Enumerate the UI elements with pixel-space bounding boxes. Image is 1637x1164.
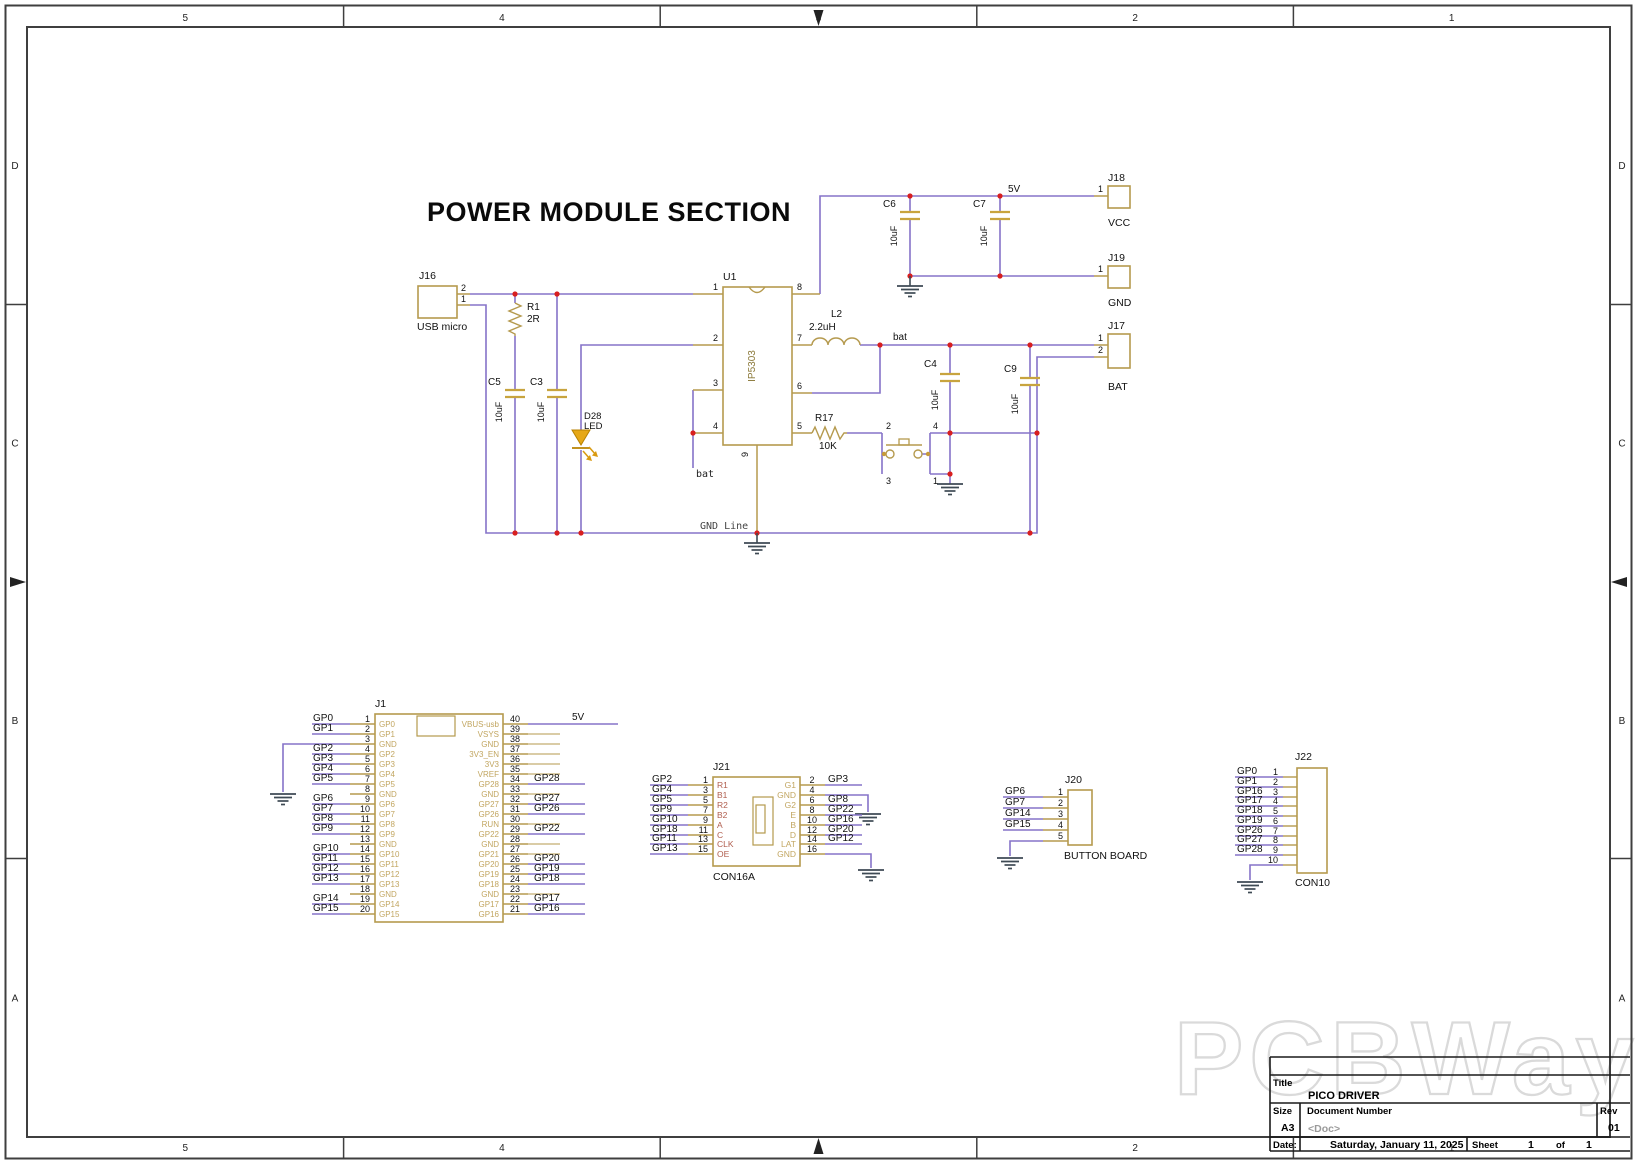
pin-number: 4	[1273, 796, 1278, 806]
pin-number: 1	[933, 476, 938, 486]
pin-name: GP3	[379, 760, 396, 769]
button-pin-dot	[926, 452, 930, 456]
zone-number: 2	[1132, 1143, 1138, 1154]
pin-name: GND	[379, 890, 397, 899]
pin-number: 20	[360, 904, 370, 914]
pin-number: 3	[365, 734, 370, 744]
pin-number: 5	[797, 421, 802, 431]
pin-number: 2	[1098, 345, 1103, 355]
pin-name: GND	[481, 740, 499, 749]
rev-label: Rev	[1600, 1106, 1618, 1117]
net-label: GP13	[313, 873, 339, 884]
net-label: GP16	[534, 903, 560, 914]
pin-name: 3V3	[485, 760, 500, 769]
pin-name: GP12	[379, 870, 400, 879]
j18-body	[1108, 186, 1130, 208]
pin-number: 34	[510, 774, 520, 784]
junction-dot	[690, 430, 695, 435]
center-arrow-icon	[10, 577, 26, 587]
pin-number: 16	[807, 844, 817, 854]
pin-number: 5	[1273, 806, 1278, 816]
pin-number: 29	[510, 824, 520, 834]
net-label: GP12	[828, 833, 854, 844]
pin-number: 13	[698, 834, 708, 844]
pin-number: 15	[698, 844, 708, 854]
net-label: GP18	[534, 873, 560, 884]
pin-name: B1	[717, 790, 728, 800]
pin-number: 3	[703, 785, 708, 795]
pin-name: GND	[777, 790, 796, 800]
j17-ref: J17	[1108, 320, 1125, 332]
led-triangle	[572, 430, 590, 445]
pin-name: GP8	[379, 820, 396, 829]
r1-ref: R1	[527, 302, 540, 313]
frame-inner	[27, 27, 1610, 1137]
pin-number: 8	[365, 784, 370, 794]
pin-number: 9	[365, 794, 370, 804]
zone-number: 2	[1132, 13, 1138, 24]
j19-ref: J19	[1108, 252, 1125, 264]
c7-value: 10uF	[979, 225, 989, 246]
button-pin-dot	[882, 452, 886, 456]
net-label-bat: bat	[696, 469, 714, 480]
pin-number: 8	[809, 805, 814, 815]
j18-name: VCC	[1108, 217, 1131, 229]
pin-number: 3	[886, 476, 891, 486]
drawing-frame: 5544332211DDCCBBAA	[6, 6, 1632, 1159]
pin-name: GP4	[379, 770, 396, 779]
pin-number: 10	[360, 804, 370, 814]
j21-name: CON16A	[713, 871, 755, 883]
pin-name: GP5	[379, 780, 396, 789]
pin-number: 1	[1058, 787, 1063, 797]
title-label: Title	[1273, 1078, 1292, 1089]
schematic-sheet: PCBWay 5544332211DDCCBBAA POWER MODULE S…	[0, 0, 1637, 1164]
pin-number: 4	[933, 421, 938, 431]
pin-number: 11	[361, 814, 370, 824]
pin-name: GP1	[379, 730, 396, 739]
pin-number: 9	[740, 452, 750, 457]
connector-j20-button-board: J20BUTTON BOARD1GP62GP73GP144GP155	[997, 774, 1148, 869]
pin-name: CLK	[717, 839, 734, 849]
j20-ref: J20	[1065, 774, 1082, 786]
pin-number: 3	[713, 378, 718, 388]
pin-number: 10	[1268, 855, 1278, 865]
junction-dot	[997, 193, 1002, 198]
led-icon	[572, 430, 598, 461]
pin-number: 1	[703, 775, 708, 785]
pin-name: R1	[717, 780, 728, 790]
date-label: Date:	[1273, 1140, 1297, 1151]
center-arrow-icon	[1611, 577, 1627, 587]
pin-number: 14	[360, 844, 370, 854]
junction-dot	[1027, 342, 1032, 347]
c4-ref: C4	[924, 359, 937, 370]
pin-number: 5	[703, 795, 708, 805]
pin-name: GND	[379, 840, 397, 849]
pin-number: 9	[1273, 845, 1278, 855]
pin-number: 26	[510, 854, 520, 864]
pin-number: 2	[1058, 798, 1063, 808]
j20-body	[1068, 790, 1092, 845]
zone-number: 4	[499, 13, 505, 24]
net-label: GP14	[1005, 808, 1031, 819]
pin-number: 32	[510, 794, 520, 804]
pin-name: VREF	[478, 770, 499, 779]
rev-value: 01	[1608, 1122, 1620, 1134]
c3-ref: C3	[530, 377, 543, 388]
pin-name: GP21	[479, 850, 500, 859]
pin-number: 3	[1058, 809, 1063, 819]
pin-number: 19	[360, 894, 370, 904]
pin-name: GP0	[379, 720, 396, 729]
pin-number: 6	[365, 764, 370, 774]
zone-number: 4	[499, 1143, 505, 1154]
frame-outer	[6, 6, 1632, 1159]
pin-number: 18	[360, 884, 370, 894]
pin-number: 14	[807, 834, 817, 844]
pin-name: GND	[481, 890, 499, 899]
pin-number: 7	[703, 805, 708, 815]
inductor-symbol	[812, 338, 860, 345]
pin-number: 2	[461, 283, 466, 293]
pin-number: 1	[461, 294, 466, 304]
pin-name: G2	[785, 800, 797, 810]
pin-number: 8	[1273, 835, 1278, 845]
net-label: GP15	[313, 903, 339, 914]
pin-name: GP16	[479, 910, 500, 919]
pin-name: GP2	[379, 750, 396, 759]
section-heading: POWER MODULE SECTION	[427, 197, 791, 227]
pin-name: OE	[717, 849, 730, 859]
junction-dot	[947, 342, 952, 347]
pin-number: 4	[365, 744, 370, 754]
pin-name: GP19	[479, 870, 500, 879]
pin-name: G1	[785, 780, 797, 790]
resistor-symbol	[509, 303, 847, 439]
net-label: GP15	[1005, 819, 1031, 830]
zone-number: 5	[183, 13, 189, 24]
pin-number: 13	[360, 834, 370, 844]
net-label: GP13	[652, 843, 678, 854]
c3-value: 10uF	[536, 401, 546, 422]
connector-j21-con16a: J21CON16A1R1GP23B1GP45R2GP57B2GP99AGP101…	[650, 761, 884, 883]
pin-name: 3V3_EN	[469, 750, 499, 759]
r17-ref: R17	[815, 413, 834, 424]
junction-dot	[877, 342, 882, 347]
wire	[1010, 841, 1043, 856]
pin-number: 1	[1098, 184, 1103, 194]
net-label: GP9	[313, 823, 333, 834]
c6-ref: C6	[883, 199, 896, 210]
net-label-5v: 5V	[1008, 184, 1021, 195]
pin-number: 27	[510, 844, 520, 854]
zone-number: 1	[1449, 13, 1455, 24]
pin-number: 2	[809, 775, 814, 785]
j22-body	[1297, 768, 1327, 873]
pin-number: 12	[360, 824, 370, 834]
size-label: Size	[1273, 1106, 1292, 1117]
pin-name: GND	[379, 740, 397, 749]
pin-number: 33	[510, 784, 520, 794]
j1-ref: J1	[375, 698, 386, 710]
pin-number: 31	[510, 804, 520, 814]
pin-number: 28	[510, 834, 520, 844]
junction-dot	[554, 291, 559, 296]
pin-name: E	[790, 810, 796, 820]
pin-name: GND	[481, 790, 499, 799]
pin-name: GND	[379, 790, 397, 799]
pin-name: GP6	[379, 800, 396, 809]
gnd-line-label: GND Line	[700, 521, 748, 532]
net-label: 5V	[572, 712, 585, 723]
pin-number: 39	[510, 724, 520, 734]
pin-number: 1	[1098, 264, 1103, 274]
pin-name: RUN	[482, 820, 500, 829]
frame-zones: 5544332211DDCCBBAA	[6, 6, 1631, 1158]
junction-dot	[907, 193, 912, 198]
pin-number: 6	[1273, 816, 1278, 826]
u1-ref: U1	[723, 271, 737, 283]
junction-dot	[512, 530, 517, 535]
pin-name: GP9	[379, 830, 396, 839]
net-label: GP5	[313, 773, 333, 784]
button-actuator	[899, 439, 909, 445]
pin-name: VBUS-usb	[462, 720, 500, 729]
junction-dot	[512, 291, 517, 296]
zone-letter: B	[12, 716, 19, 727]
zone-letter: D	[11, 161, 18, 172]
of-label: of	[1556, 1140, 1566, 1151]
date-value: Saturday, January 11, 2025	[1330, 1139, 1464, 1151]
watermark: PCBWay	[1174, 1001, 1637, 1117]
j1-notch	[417, 716, 455, 736]
pin-number: 24	[510, 874, 520, 884]
pin-number: 1	[365, 714, 370, 724]
j18-ref: J18	[1108, 172, 1125, 184]
pin-number: 37	[510, 744, 520, 754]
pin-name: A	[717, 820, 723, 830]
j16-name: USB micro	[417, 321, 467, 333]
pin-number: 30	[510, 814, 520, 824]
j17-name: BAT	[1108, 381, 1128, 393]
pin-number: 4	[809, 785, 814, 795]
zone-number: 5	[183, 1143, 189, 1154]
wire	[825, 854, 871, 868]
schematic-canvas: PCBWay 5544332211DDCCBBAA POWER MODULE S…	[0, 0, 1637, 1164]
c4-value: 10uF	[930, 389, 940, 410]
pin-name: GP27	[479, 800, 500, 809]
j19-name: GND	[1108, 297, 1132, 309]
pin-name: B2	[717, 810, 728, 820]
l2-ref: L2	[831, 309, 843, 320]
pin-number: 9	[703, 815, 708, 825]
c9-ref: C9	[1004, 364, 1017, 375]
u1-value: IP5303	[747, 350, 758, 382]
j22-ref: J22	[1295, 751, 1312, 763]
pin-number: 1	[713, 282, 718, 292]
pin-name: B	[790, 820, 796, 830]
junction-dot	[1027, 530, 1032, 535]
pin-name: GP14	[379, 900, 400, 909]
schematic-title: PICO DRIVER	[1308, 1090, 1380, 1102]
pin-number: 5	[1058, 831, 1063, 841]
pin-number: 8	[797, 282, 802, 292]
pin-number: 1	[1273, 767, 1278, 777]
pin-number: 21	[510, 904, 520, 914]
zone-letter: B	[1619, 716, 1626, 727]
pin-name: LAT	[781, 839, 796, 849]
connector-j22-con10: J22CON101GP02GP13GP164GP175GP186GP197GP2…	[1235, 751, 1330, 893]
net-label: GP3	[828, 774, 848, 785]
zone-letter: C	[1618, 438, 1625, 449]
pin-name: GP28	[479, 780, 500, 789]
usb-connector-body	[418, 286, 457, 318]
junction-dot	[947, 471, 952, 476]
pin-number: 4	[1058, 820, 1063, 830]
zone-letter: C	[11, 438, 18, 449]
c7-ref: C7	[973, 199, 986, 210]
pin-name: GND	[481, 840, 499, 849]
junction-dot	[578, 530, 583, 535]
pin-number: 4	[713, 421, 718, 431]
pin-name: GP26	[479, 810, 500, 819]
pin-number: 15	[360, 854, 370, 864]
junction-dot	[997, 273, 1002, 278]
pin-number: 40	[510, 714, 520, 724]
button-contact	[914, 450, 922, 458]
pin-name: GP10	[379, 850, 400, 859]
button-contact	[886, 450, 894, 458]
pin-number: 22	[510, 894, 520, 904]
pin-name: GP17	[479, 900, 500, 909]
pin-number: 17	[360, 874, 370, 884]
net-label-bat: bat	[893, 332, 907, 343]
net-label: GP22	[534, 823, 560, 834]
pin-name: GP18	[479, 880, 500, 889]
junction-dot	[947, 430, 952, 435]
r17-value: 10K	[819, 441, 837, 452]
net-label: GP7	[1005, 797, 1025, 808]
r1-value: 2R	[527, 314, 540, 325]
zone-letter: A	[1619, 993, 1626, 1004]
zone-letter: A	[12, 993, 19, 1004]
d28-value: LED	[584, 421, 603, 432]
pin-number: 38	[510, 734, 520, 744]
net-label: GP6	[1005, 786, 1025, 797]
j17-body	[1108, 334, 1130, 368]
j22-name: CON10	[1295, 877, 1330, 889]
zone-letter: D	[1618, 161, 1625, 172]
junction-dot	[554, 530, 559, 535]
c5-value: 10uF	[494, 401, 504, 422]
j16-ref: J16	[419, 270, 436, 282]
junction-dot	[1034, 430, 1039, 435]
c5-ref: C5	[488, 377, 501, 388]
wire	[1250, 865, 1283, 880]
pin-number: 35	[510, 764, 520, 774]
j19-body	[1108, 266, 1130, 288]
pin-number: 1	[1098, 333, 1103, 343]
pin-number: 7	[797, 333, 802, 343]
doc-number-value: <Doc>	[1308, 1123, 1340, 1135]
c6-value: 10uF	[889, 225, 899, 246]
pin-name: R2	[717, 800, 728, 810]
j21-key-slot-inner	[756, 805, 765, 833]
connector-j1-pico: J11GP0GP02GP1GP13GND4GP2GP25GP3GP36GP4GP…	[270, 698, 618, 922]
pin-number: 23	[510, 884, 520, 894]
power-module-section: POWER MODULE SECTION	[417, 172, 1132, 554]
sheet-num: 1	[1528, 1139, 1534, 1151]
pin-number: 16	[360, 864, 370, 874]
pin-name: GP13	[379, 880, 400, 889]
pin-number: 6	[797, 381, 802, 391]
pin-name: GP7	[379, 810, 396, 819]
pushbutton-icon	[882, 439, 930, 458]
pin-number: 2	[713, 333, 718, 343]
c9-value: 10uF	[1010, 393, 1020, 414]
pin-number: 6	[809, 795, 814, 805]
pin-name: GP11	[379, 860, 399, 869]
pin-number: 2	[886, 421, 891, 431]
pin-number: 7	[365, 774, 370, 784]
net-label: GP28	[534, 773, 560, 784]
pin-number: 2	[365, 724, 370, 734]
pin-name: VSYS	[478, 730, 499, 739]
pin-name: GP20	[479, 860, 500, 869]
size-value: A3	[1281, 1122, 1295, 1134]
j20-name: BUTTON BOARD	[1064, 850, 1148, 862]
net-label: GP1	[313, 723, 333, 734]
sheet-label: Sheet	[1472, 1140, 1499, 1151]
pin-name: GP15	[379, 910, 400, 919]
pin-name: GND	[777, 849, 796, 859]
net-label: GP26	[534, 803, 560, 814]
pin-number: 10	[807, 815, 817, 825]
pin-name: GP22	[479, 830, 500, 839]
net-label: GP28	[1237, 844, 1263, 855]
l2-value: 2.2uH	[809, 322, 836, 333]
pin-number: 25	[510, 864, 520, 874]
sheet-total: 1	[1586, 1139, 1592, 1151]
pin-number: 5	[365, 754, 370, 764]
pin-number: 2	[1273, 777, 1278, 787]
doc-number-label: Document Number	[1307, 1106, 1392, 1117]
pin-number: 36	[510, 754, 520, 764]
j21-ref: J21	[713, 761, 730, 773]
